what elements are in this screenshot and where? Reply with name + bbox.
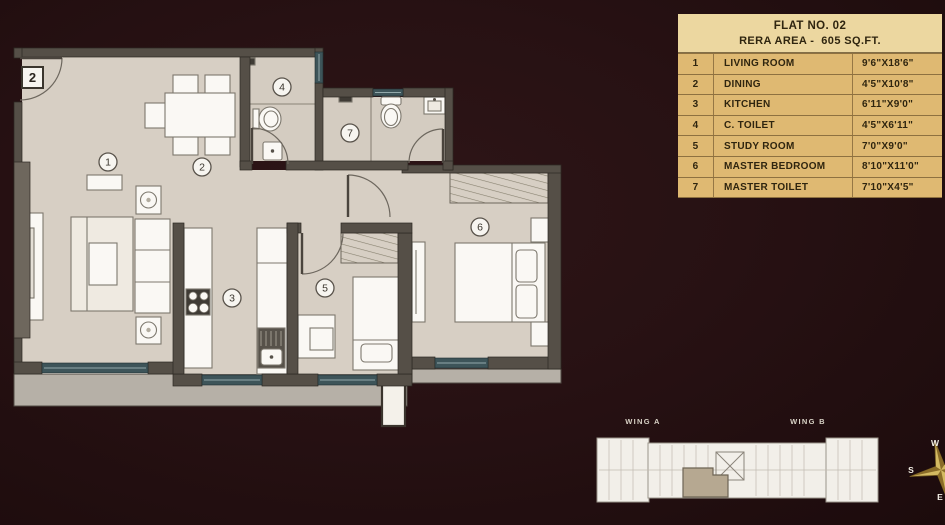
wing-a-label: WING A bbox=[608, 417, 678, 426]
svg-text:6: 6 bbox=[477, 222, 483, 234]
legend-row: 7 MASTER TOILET 7'10"X4'5" bbox=[678, 177, 942, 199]
wing-b-label: WING B bbox=[773, 417, 843, 426]
room-marker-master-toilet: 7 bbox=[341, 124, 359, 142]
brochure-page: 2 1 2 3 4 5 6 7 bbox=[0, 0, 945, 525]
svg-text:2: 2 bbox=[199, 162, 205, 174]
legend-row: 2 DINING 4'5"X10'8" bbox=[678, 74, 942, 95]
dining-table bbox=[165, 93, 235, 137]
dining-chair bbox=[205, 135, 230, 155]
sofa bbox=[135, 219, 170, 313]
coffee-table bbox=[89, 243, 117, 285]
flat-number-marker: 2 bbox=[22, 67, 43, 88]
svg-text:5: 5 bbox=[322, 283, 328, 295]
compass-south-label: S bbox=[908, 465, 914, 475]
room-marker-c-toilet: 4 bbox=[273, 78, 291, 96]
dining-chair bbox=[173, 75, 198, 95]
room-marker-living: 1 bbox=[99, 153, 117, 171]
flat-title: FLAT NO. 02 bbox=[678, 20, 942, 32]
rera-area: RERA AREA - 605 SQ.FT. bbox=[678, 35, 942, 47]
pillow bbox=[516, 250, 537, 282]
svg-text:3: 3 bbox=[229, 293, 235, 305]
compass-east-label: E bbox=[937, 492, 943, 502]
dining-chair bbox=[145, 103, 167, 128]
room-marker-study: 5 bbox=[316, 279, 334, 297]
compass-rose: W S E bbox=[903, 434, 945, 506]
room-marker-kitchen: 3 bbox=[223, 289, 241, 307]
legend-row: 1 LIVING ROOM 9'6"X18'6" bbox=[678, 53, 942, 74]
accent-chair bbox=[87, 175, 122, 190]
wc-tank bbox=[253, 109, 259, 129]
key-plan bbox=[597, 438, 878, 502]
legend-row: 5 STUDY ROOM 7'0"X9'0" bbox=[678, 135, 942, 156]
svg-text:2: 2 bbox=[29, 70, 36, 85]
legend-row: 4 C. TOILET 4'5"X6'11" bbox=[678, 115, 942, 136]
floor-plan: 2 1 2 3 4 5 6 7 bbox=[14, 48, 561, 426]
legend-row: 6 MASTER BEDROOM 8'10"X11'0" bbox=[678, 156, 942, 177]
room-marker-dining: 2 bbox=[193, 158, 211, 176]
compass-west-label: W bbox=[931, 438, 940, 448]
legend-header: FLAT NO. 02 RERA AREA - 605 SQ.FT. bbox=[678, 14, 942, 53]
legend-table: FLAT NO. 02 RERA AREA - 605 SQ.FT. 1 LIV… bbox=[678, 14, 942, 198]
dining-chair bbox=[205, 75, 230, 95]
svg-text:7: 7 bbox=[347, 128, 353, 140]
svg-text:4: 4 bbox=[279, 82, 285, 94]
pillow bbox=[516, 285, 537, 318]
svg-text:1: 1 bbox=[105, 157, 111, 169]
room-marker-bedroom: 6 bbox=[471, 218, 489, 236]
bedroom-wardrobe-hatch bbox=[450, 173, 548, 203]
wall-pier bbox=[14, 162, 30, 338]
study-chair bbox=[310, 328, 333, 350]
dresser bbox=[412, 242, 425, 322]
dining-chair bbox=[173, 135, 198, 155]
study-wardrobe-hatch bbox=[341, 233, 398, 263]
legend-row: 3 KITCHEN 6'11"X9'0" bbox=[678, 94, 942, 115]
pillow bbox=[361, 344, 392, 362]
